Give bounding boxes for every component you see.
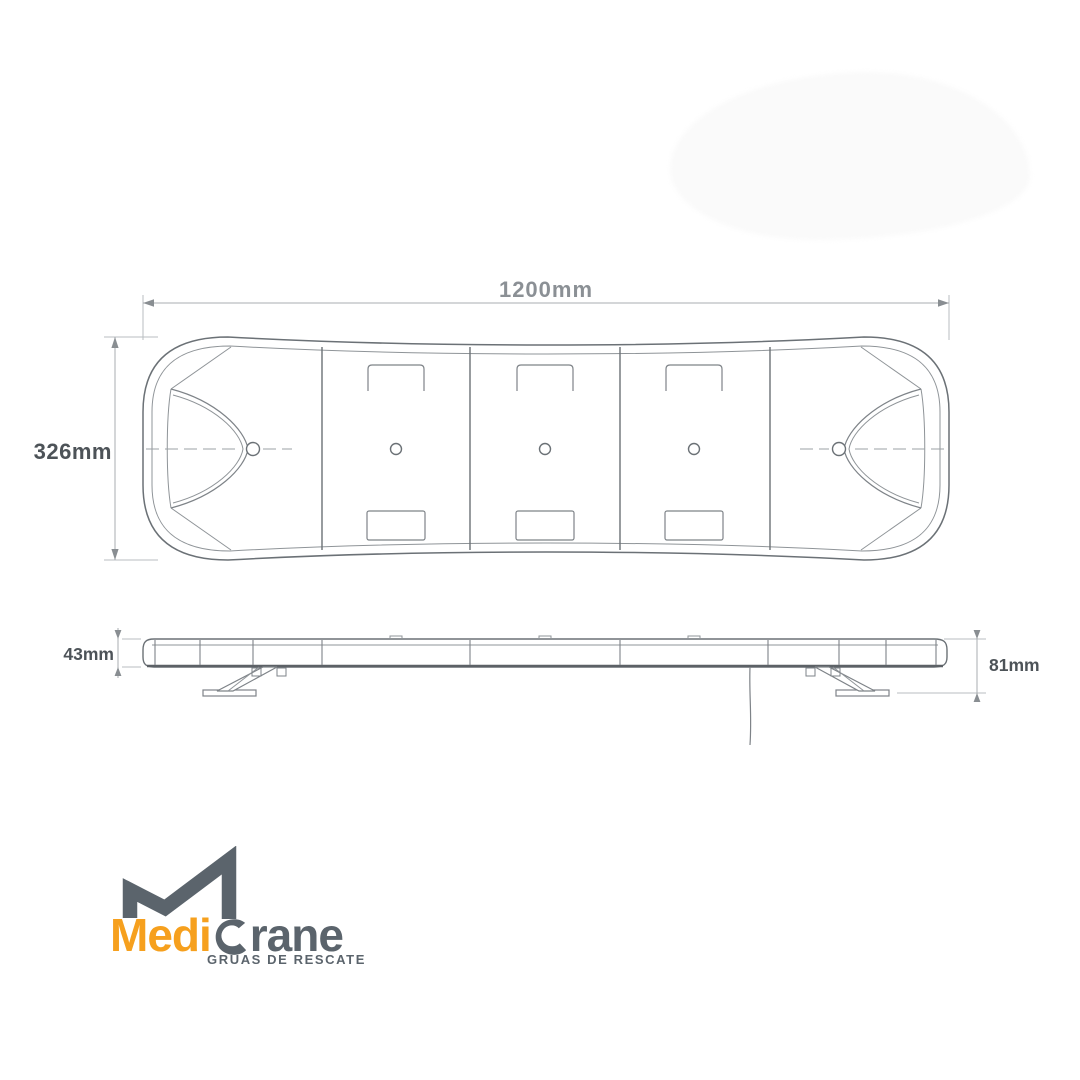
module-top-tabs — [368, 365, 722, 391]
screw-hole — [540, 444, 551, 455]
bolt — [806, 668, 815, 676]
end-cap-right — [800, 347, 946, 550]
dim-label-height: 326mm — [26, 439, 112, 465]
side-view-drawing — [115, 628, 986, 745]
module-bottom-plate — [367, 511, 425, 540]
module-bottom-plate — [516, 511, 574, 540]
mounting-bracket-right — [806, 667, 889, 696]
module-bottom-plate — [665, 511, 723, 540]
screw-hole — [391, 444, 402, 455]
screw-hole — [247, 443, 260, 456]
end-cap-left — [146, 347, 292, 550]
top-view-drawing — [104, 295, 949, 560]
canvas: 1200mm 326mm 43mm 81mm Medi rane GRÚAS D… — [0, 0, 1080, 1080]
dim-label-bar-height: 43mm — [40, 644, 114, 665]
dim-label-width: 1200mm — [476, 277, 616, 303]
bolt — [277, 668, 286, 676]
screw-hole — [689, 444, 700, 455]
dim-label-total-height: 81mm — [989, 655, 1040, 676]
lightbar-side-outline — [143, 639, 947, 667]
mounting-bracket-left — [203, 667, 286, 696]
technical-drawing — [0, 0, 1080, 1080]
power-cable — [750, 667, 751, 745]
side-seams — [155, 640, 936, 665]
screw-hole — [833, 443, 846, 456]
dimension-bar-height — [115, 628, 141, 678]
